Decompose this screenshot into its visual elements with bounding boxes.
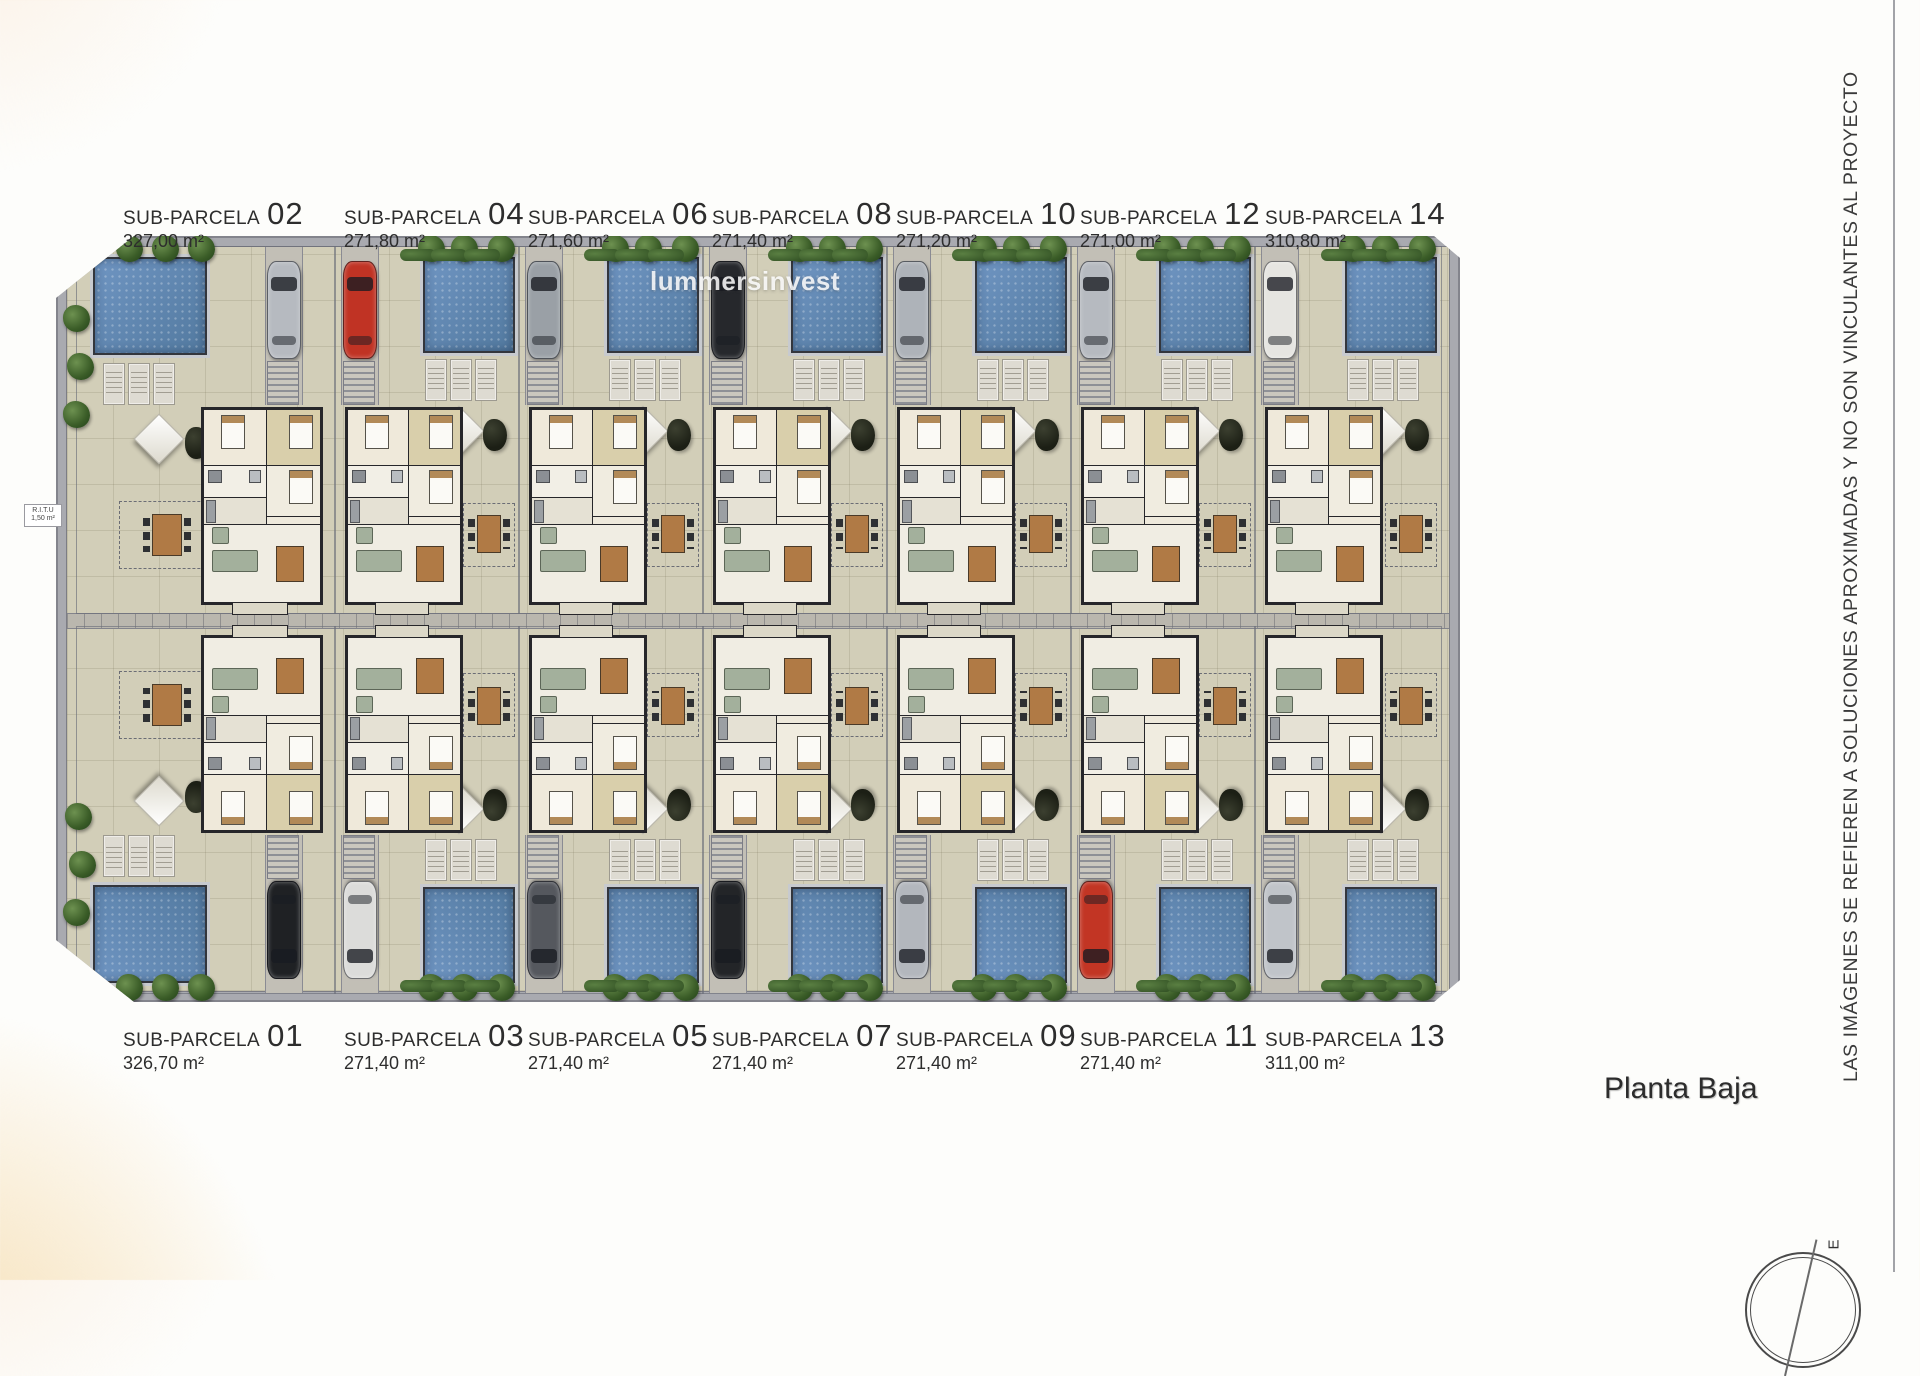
- entrance-stairs-icon: [895, 835, 927, 879]
- parcel-label-03: SUB-PARCELA03271,40 m²: [344, 1018, 544, 1074]
- kitchen: [203, 714, 267, 743]
- bed-icon: [1165, 415, 1189, 449]
- living-room: [203, 637, 321, 716]
- sun-lounger-icon: [977, 359, 999, 401]
- kitchen: [899, 497, 961, 526]
- outdoor-table-icon: [661, 515, 685, 553]
- swimming-pool: [1159, 887, 1251, 983]
- living-room: [347, 637, 461, 716]
- dining-table-icon: [968, 658, 996, 694]
- parcel-area: 271,40 m²: [896, 1053, 1096, 1074]
- bed-icon: [429, 415, 453, 449]
- parcel-name: SUB-PARCELA: [123, 208, 260, 229]
- bedroom: [960, 773, 1013, 831]
- house-floorplan-14: [1265, 407, 1383, 605]
- sun-lounger-icon: [1372, 359, 1394, 401]
- car-icon: [527, 261, 561, 359]
- bed-icon: [1101, 415, 1125, 449]
- bathroom-core: [715, 465, 777, 500]
- swimming-pool: [93, 885, 207, 983]
- bed-icon: [1285, 415, 1309, 449]
- car-icon: [1263, 261, 1297, 359]
- parcel-name: SUB-PARCELA: [1080, 1030, 1217, 1051]
- site-ground: [66, 246, 1450, 992]
- parcel-label-04: SUB-PARCELA04271,80 m²: [344, 196, 544, 252]
- bedroom: [347, 409, 409, 467]
- swimming-pool: [423, 257, 515, 353]
- parcel-plot-03: [335, 627, 519, 993]
- parcel-number: 05: [672, 1018, 708, 1053]
- sun-lounger-icon: [1211, 839, 1233, 881]
- bedroom: [1144, 773, 1197, 831]
- terrace: [559, 625, 613, 637]
- living-room: [203, 524, 321, 603]
- parcel-number: 11: [1224, 1018, 1258, 1053]
- sun-lounger-icon: [1027, 839, 1049, 881]
- outdoor-table-icon: [1029, 515, 1053, 553]
- parcel-number: 03: [488, 1018, 524, 1053]
- terrace: [1295, 603, 1349, 615]
- car-icon: [267, 881, 301, 979]
- sofa-icon: [356, 550, 402, 572]
- bedroom: [1144, 465, 1197, 517]
- parcel-area: 271,20 m²: [896, 231, 1096, 252]
- parcel-label-07: SUB-PARCELA07271,40 m²: [712, 1018, 912, 1074]
- car-icon: [1263, 881, 1297, 979]
- bed-icon: [1349, 791, 1373, 825]
- outdoor-dining-area: [1385, 503, 1437, 567]
- parcel-area: 327,00 m²: [123, 231, 323, 252]
- dining-table-icon: [416, 546, 444, 582]
- swimming-pool: [791, 887, 883, 983]
- bedroom: [1328, 723, 1381, 775]
- bed-icon: [1349, 415, 1373, 449]
- bedroom: [899, 409, 961, 467]
- swimming-pool: [423, 887, 515, 983]
- page-title: Planta Baja: [1604, 1072, 1757, 1106]
- outdoor-dining-area: [1015, 503, 1067, 567]
- dining-table-icon: [600, 658, 628, 694]
- kitchen: [1083, 714, 1145, 743]
- parcel-number: 12: [1224, 196, 1260, 231]
- car-icon: [343, 261, 377, 359]
- parcel-number: 01: [267, 1018, 303, 1053]
- parcel-area: 271,00 m²: [1080, 231, 1280, 252]
- sun-lounger-icon: [843, 839, 865, 881]
- outdoor-dining-area: [831, 503, 883, 567]
- swimming-pool: [975, 257, 1067, 353]
- dining-table-icon: [1152, 658, 1180, 694]
- bed-icon: [797, 470, 821, 504]
- outdoor-dining-area: [1015, 673, 1067, 737]
- terrace: [375, 625, 429, 637]
- bedroom: [1144, 409, 1197, 467]
- outdoor-table-icon: [1399, 515, 1423, 553]
- bedroom: [592, 465, 645, 517]
- bed-icon: [1349, 736, 1373, 770]
- bed-icon: [289, 736, 313, 770]
- kitchen: [1083, 497, 1145, 526]
- house-floorplan-02: [201, 407, 323, 605]
- outdoor-table-icon: [1029, 687, 1053, 725]
- sofa-icon: [212, 550, 258, 572]
- parcel-name: SUB-PARCELA: [528, 1030, 665, 1051]
- bathroom-core: [1267, 741, 1329, 776]
- swimming-pool: [1345, 257, 1437, 353]
- outdoor-table-icon: [1399, 687, 1423, 725]
- bedroom: [776, 723, 829, 775]
- parcel-plot-14: [1255, 247, 1441, 613]
- kitchen: [1267, 714, 1329, 743]
- bed-icon: [1285, 791, 1309, 825]
- sun-lounger-icon: [1186, 359, 1208, 401]
- sofa-icon: [540, 668, 586, 690]
- sun-lounger-icon: [1186, 839, 1208, 881]
- kitchen: [531, 497, 593, 526]
- bedroom: [960, 723, 1013, 775]
- parcel-plot-11: [1071, 627, 1255, 993]
- tree-icon: [116, 974, 143, 1001]
- dining-table-icon: [784, 658, 812, 694]
- terrace: [559, 603, 613, 615]
- bed-icon: [797, 415, 821, 449]
- sun-lounger-icon: [153, 363, 175, 405]
- bed-icon: [613, 415, 637, 449]
- parcel-label-01: SUB-PARCELA01326,70 m²: [123, 1018, 323, 1074]
- bedroom: [592, 409, 645, 467]
- bed-icon: [981, 791, 1005, 825]
- bedroom: [1083, 409, 1145, 467]
- parcel-name: SUB-PARCELA: [123, 1030, 260, 1051]
- sun-lounger-icon: [1347, 839, 1369, 881]
- armchair-icon: [212, 527, 229, 544]
- parcel-plot-09: [887, 627, 1071, 993]
- dining-table-icon: [416, 658, 444, 694]
- bedroom: [266, 723, 321, 775]
- dining-table-icon: [1152, 546, 1180, 582]
- sun-lounger-icon: [475, 839, 497, 881]
- outdoor-dining-area: [463, 503, 515, 567]
- outdoor-dining-area: [1385, 673, 1437, 737]
- bed-icon: [733, 791, 757, 825]
- compass-icon: E: [1745, 1252, 1861, 1368]
- bed-icon: [1349, 470, 1373, 504]
- living-room: [531, 524, 645, 603]
- armchair-icon: [540, 696, 557, 713]
- bedroom: [266, 409, 321, 467]
- sun-lounger-icon: [153, 835, 175, 877]
- bathroom-core: [531, 741, 593, 776]
- parcel-name: SUB-PARCELA: [712, 208, 849, 229]
- bedroom: [715, 773, 777, 831]
- bed-icon: [613, 791, 637, 825]
- bedroom: [203, 409, 267, 467]
- disclaimer-text: LAS IMÁGENES SE REFIEREN A SOLUCIONES AP…: [1840, 0, 1870, 1082]
- sun-lounger-icon: [128, 835, 150, 877]
- garden-shrub-icon: [851, 789, 875, 821]
- terrace: [232, 603, 288, 615]
- parcel-label-08: SUB-PARCELA08271,40 m²: [712, 196, 912, 252]
- bed-icon: [797, 736, 821, 770]
- living-room: [1267, 637, 1381, 716]
- bedroom: [1144, 723, 1197, 775]
- sun-lounger-icon: [425, 359, 447, 401]
- entrance-stairs-icon: [527, 361, 559, 405]
- parcel-name: SUB-PARCELA: [896, 1030, 1033, 1051]
- parcel-label-13: SUB-PARCELA13311,00 m²: [1265, 1018, 1465, 1074]
- garden-shrub-icon: [851, 419, 875, 451]
- garden-shrub-icon: [667, 789, 691, 821]
- living-room: [531, 637, 645, 716]
- armchair-icon: [724, 527, 741, 544]
- garden-shrub-icon: [1219, 789, 1243, 821]
- entrance-stairs-icon: [711, 835, 743, 879]
- sofa-icon: [1276, 668, 1322, 690]
- living-room: [899, 524, 1013, 603]
- bed-icon: [221, 791, 245, 825]
- bed-icon: [613, 470, 637, 504]
- parcel-plot-13: [1255, 627, 1441, 993]
- living-room: [899, 637, 1013, 716]
- parcel-label-06: SUB-PARCELA06271,60 m²: [528, 196, 728, 252]
- garden-shrub-icon: [1405, 419, 1429, 451]
- terrace: [1295, 625, 1349, 637]
- house-floorplan-10: [897, 407, 1015, 605]
- parcel-number: 06: [672, 196, 708, 231]
- sun-lounger-icon: [818, 839, 840, 881]
- armchair-icon: [212, 696, 229, 713]
- parcel-area: 271,40 m²: [712, 231, 912, 252]
- bathroom-core: [347, 741, 409, 776]
- bed-icon: [1101, 791, 1125, 825]
- house-floorplan-13: [1265, 635, 1383, 833]
- parcel-name: SUB-PARCELA: [1265, 1030, 1402, 1051]
- bedroom: [776, 465, 829, 517]
- dining-table-icon: [1336, 546, 1364, 582]
- hedge-icon: [1167, 980, 1203, 992]
- hedge-icon: [648, 980, 684, 992]
- bathroom-core: [899, 465, 961, 500]
- outdoor-table-icon: [152, 684, 182, 726]
- swimming-pool: [93, 257, 207, 355]
- kitchen: [715, 497, 777, 526]
- garden-shrub-icon: [483, 419, 507, 451]
- car-icon: [711, 881, 745, 979]
- terrace: [927, 603, 981, 615]
- sun-lounger-icon: [977, 839, 999, 881]
- entrance-stairs-icon: [1079, 361, 1111, 405]
- parcel-area: 311,00 m²: [1265, 1053, 1465, 1074]
- bed-icon: [429, 791, 453, 825]
- bathroom-core: [347, 465, 409, 500]
- car-icon: [343, 881, 377, 979]
- entrance-stairs-icon: [267, 361, 299, 405]
- bedroom: [776, 773, 829, 831]
- hedge-icon: [1200, 980, 1236, 992]
- car-icon: [527, 881, 561, 979]
- car-icon: [267, 261, 301, 359]
- sofa-icon: [1092, 668, 1138, 690]
- bed-icon: [429, 470, 453, 504]
- parcel-number: 08: [856, 196, 892, 231]
- kitchen: [347, 497, 409, 526]
- sun-lounger-icon: [843, 359, 865, 401]
- bathroom-core: [203, 741, 267, 776]
- tree-icon: [63, 305, 90, 332]
- house-floorplan-07: [713, 635, 831, 833]
- sun-lounger-icon: [1002, 839, 1024, 881]
- garden-shrub-icon: [1405, 789, 1429, 821]
- sun-lounger-icon: [1211, 359, 1233, 401]
- parcel-label-14: SUB-PARCELA14310,80 m²: [1265, 196, 1465, 252]
- living-room: [347, 524, 461, 603]
- sun-lounger-icon: [659, 839, 681, 881]
- dining-table-icon: [276, 546, 304, 582]
- car-icon: [895, 261, 929, 359]
- hedge-icon: [799, 980, 835, 992]
- sun-lounger-icon: [1372, 839, 1394, 881]
- parcel-plot-10: [887, 247, 1071, 613]
- sun-lounger-icon: [609, 839, 631, 881]
- house-floorplan-05: [529, 635, 647, 833]
- parcel-plot-01: [77, 627, 335, 993]
- parcel-plot-08: [703, 247, 887, 613]
- entrance-stairs-icon: [1079, 835, 1111, 879]
- sofa-icon: [1276, 550, 1322, 572]
- parcel-label-09: SUB-PARCELA09271,40 m²: [896, 1018, 1096, 1074]
- parcel-name: SUB-PARCELA: [528, 208, 665, 229]
- tree-icon: [65, 803, 92, 830]
- outdoor-dining-area: [463, 673, 515, 737]
- living-room: [1267, 524, 1381, 603]
- living-room: [715, 524, 829, 603]
- hedge-icon: [1386, 980, 1422, 992]
- hedge-icon: [615, 980, 651, 992]
- bed-icon: [289, 415, 313, 449]
- sun-lounger-icon: [634, 359, 656, 401]
- parcel-plot-06: [519, 247, 703, 613]
- sun-lounger-icon: [128, 363, 150, 405]
- outdoor-table-icon: [845, 687, 869, 725]
- bedroom: [408, 773, 461, 831]
- watermark: lummersinvest: [650, 266, 840, 297]
- swimming-pool: [1345, 887, 1437, 983]
- bedroom: [592, 773, 645, 831]
- garden-shrub-icon: [667, 419, 691, 451]
- bedroom: [776, 409, 829, 467]
- parcel-name: SUB-PARCELA: [896, 208, 1033, 229]
- sun-lounger-icon: [103, 363, 125, 405]
- terrace: [375, 603, 429, 615]
- sun-lounger-icon: [609, 359, 631, 401]
- garden-shrub-icon: [1219, 419, 1243, 451]
- sofa-icon: [540, 550, 586, 572]
- parcel-area: 271,40 m²: [712, 1053, 912, 1074]
- sun-lounger-icon: [1002, 359, 1024, 401]
- bedroom: [715, 409, 777, 467]
- house-floorplan-11: [1081, 635, 1199, 833]
- armchair-icon: [1276, 696, 1293, 713]
- tree-icon: [67, 353, 94, 380]
- outdoor-table-icon: [1213, 687, 1237, 725]
- armchair-icon: [1276, 527, 1293, 544]
- sofa-icon: [356, 668, 402, 690]
- bed-icon: [549, 791, 573, 825]
- sun-lounger-icon: [1347, 359, 1369, 401]
- terrace: [1111, 603, 1165, 615]
- outdoor-table-icon: [845, 515, 869, 553]
- sun-lounger-icon: [659, 359, 681, 401]
- bed-icon: [797, 791, 821, 825]
- kitchen: [715, 714, 777, 743]
- bedroom: [347, 773, 409, 831]
- sun-lounger-icon: [450, 839, 472, 881]
- entrance-stairs-icon: [1263, 835, 1295, 879]
- sun-lounger-icon: [1161, 839, 1183, 881]
- parcel-number: 09: [1040, 1018, 1076, 1053]
- house-floorplan-03: [345, 635, 463, 833]
- hedge-icon: [832, 980, 868, 992]
- bedroom: [408, 409, 461, 467]
- bedroom: [899, 773, 961, 831]
- bed-icon: [365, 415, 389, 449]
- parcel-plot-05: [519, 627, 703, 993]
- bed-icon: [981, 415, 1005, 449]
- parcel-label-11: SUB-PARCELA11271,40 m²: [1080, 1018, 1280, 1074]
- bedroom: [266, 773, 321, 831]
- bedroom: [266, 465, 321, 517]
- sun-lounger-icon: [634, 839, 656, 881]
- entrance-stairs-icon: [527, 835, 559, 879]
- bedroom: [1267, 773, 1329, 831]
- kitchen: [203, 497, 267, 526]
- entrance-stairs-icon: [895, 361, 927, 405]
- dining-table-icon: [600, 546, 628, 582]
- outdoor-dining-area: [1199, 673, 1251, 737]
- bed-icon: [289, 470, 313, 504]
- bathroom-core: [1083, 465, 1145, 500]
- car-icon: [1079, 261, 1113, 359]
- parcel-label-12: SUB-PARCELA12271,00 m²: [1080, 196, 1280, 252]
- bed-icon: [981, 736, 1005, 770]
- bedroom: [1328, 773, 1381, 831]
- bed-icon: [917, 791, 941, 825]
- bathroom-core: [203, 465, 267, 500]
- bed-icon: [981, 470, 1005, 504]
- bedroom: [531, 773, 593, 831]
- dining-table-icon: [1336, 658, 1364, 694]
- armchair-icon: [356, 527, 373, 544]
- parcel-area: 271,40 m²: [1080, 1053, 1280, 1074]
- bathroom-core: [531, 465, 593, 500]
- parcel-number: 07: [856, 1018, 892, 1053]
- kitchen: [1267, 497, 1329, 526]
- armchair-icon: [1092, 696, 1109, 713]
- outdoor-table-icon: [1213, 515, 1237, 553]
- bed-icon: [289, 791, 313, 825]
- tree-icon: [79, 235, 106, 262]
- bedroom: [960, 465, 1013, 517]
- terrace: [927, 625, 981, 637]
- armchair-icon: [908, 527, 925, 544]
- bed-icon: [733, 415, 757, 449]
- sun-lounger-icon: [475, 359, 497, 401]
- sofa-icon: [908, 550, 954, 572]
- parcel-plot-12: [1071, 247, 1255, 613]
- bed-icon: [221, 415, 245, 449]
- house-floorplan-01: [201, 635, 323, 833]
- terrace: [743, 603, 797, 615]
